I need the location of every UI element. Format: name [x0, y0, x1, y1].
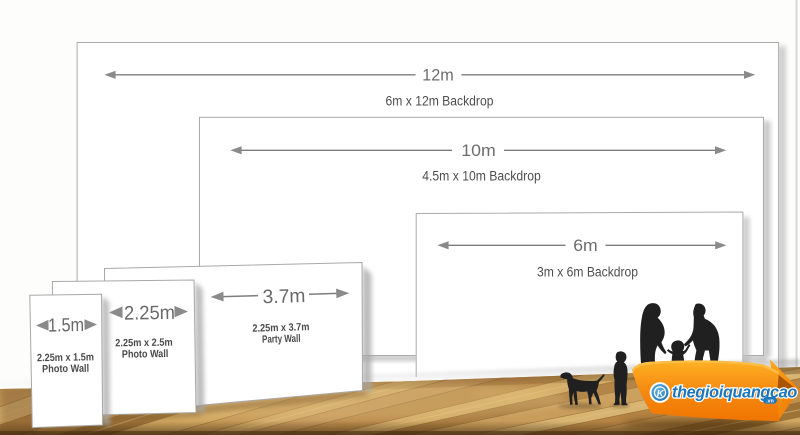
svg-text:.vn: .vn: [766, 398, 774, 404]
svg-text:10m: 10m: [461, 142, 496, 160]
svg-text:1.5m: 1.5m: [48, 315, 84, 337]
svg-text:6m: 6m: [573, 237, 598, 255]
svg-text:3.7m: 3.7m: [262, 285, 305, 308]
svg-text:4.5m x 10m Backdrop: 4.5m x 10m Backdrop: [422, 169, 541, 184]
svg-text:12m: 12m: [422, 67, 454, 85]
svg-text:Photo Wall: Photo Wall: [42, 363, 89, 376]
svg-text:thegioiquangcao: thegioiquangcao: [672, 384, 797, 402]
svg-text:Photo Wall: Photo Wall: [122, 348, 169, 361]
svg-text:3m x 6m Backdrop: 3m x 6m Backdrop: [537, 265, 638, 280]
svg-text:K: K: [657, 389, 665, 400]
svg-text:Party Wall: Party Wall: [262, 333, 301, 346]
svg-text:2.25m: 2.25m: [124, 302, 175, 325]
svg-text:6m x 12m Backdrop: 6m x 12m Backdrop: [386, 94, 494, 109]
